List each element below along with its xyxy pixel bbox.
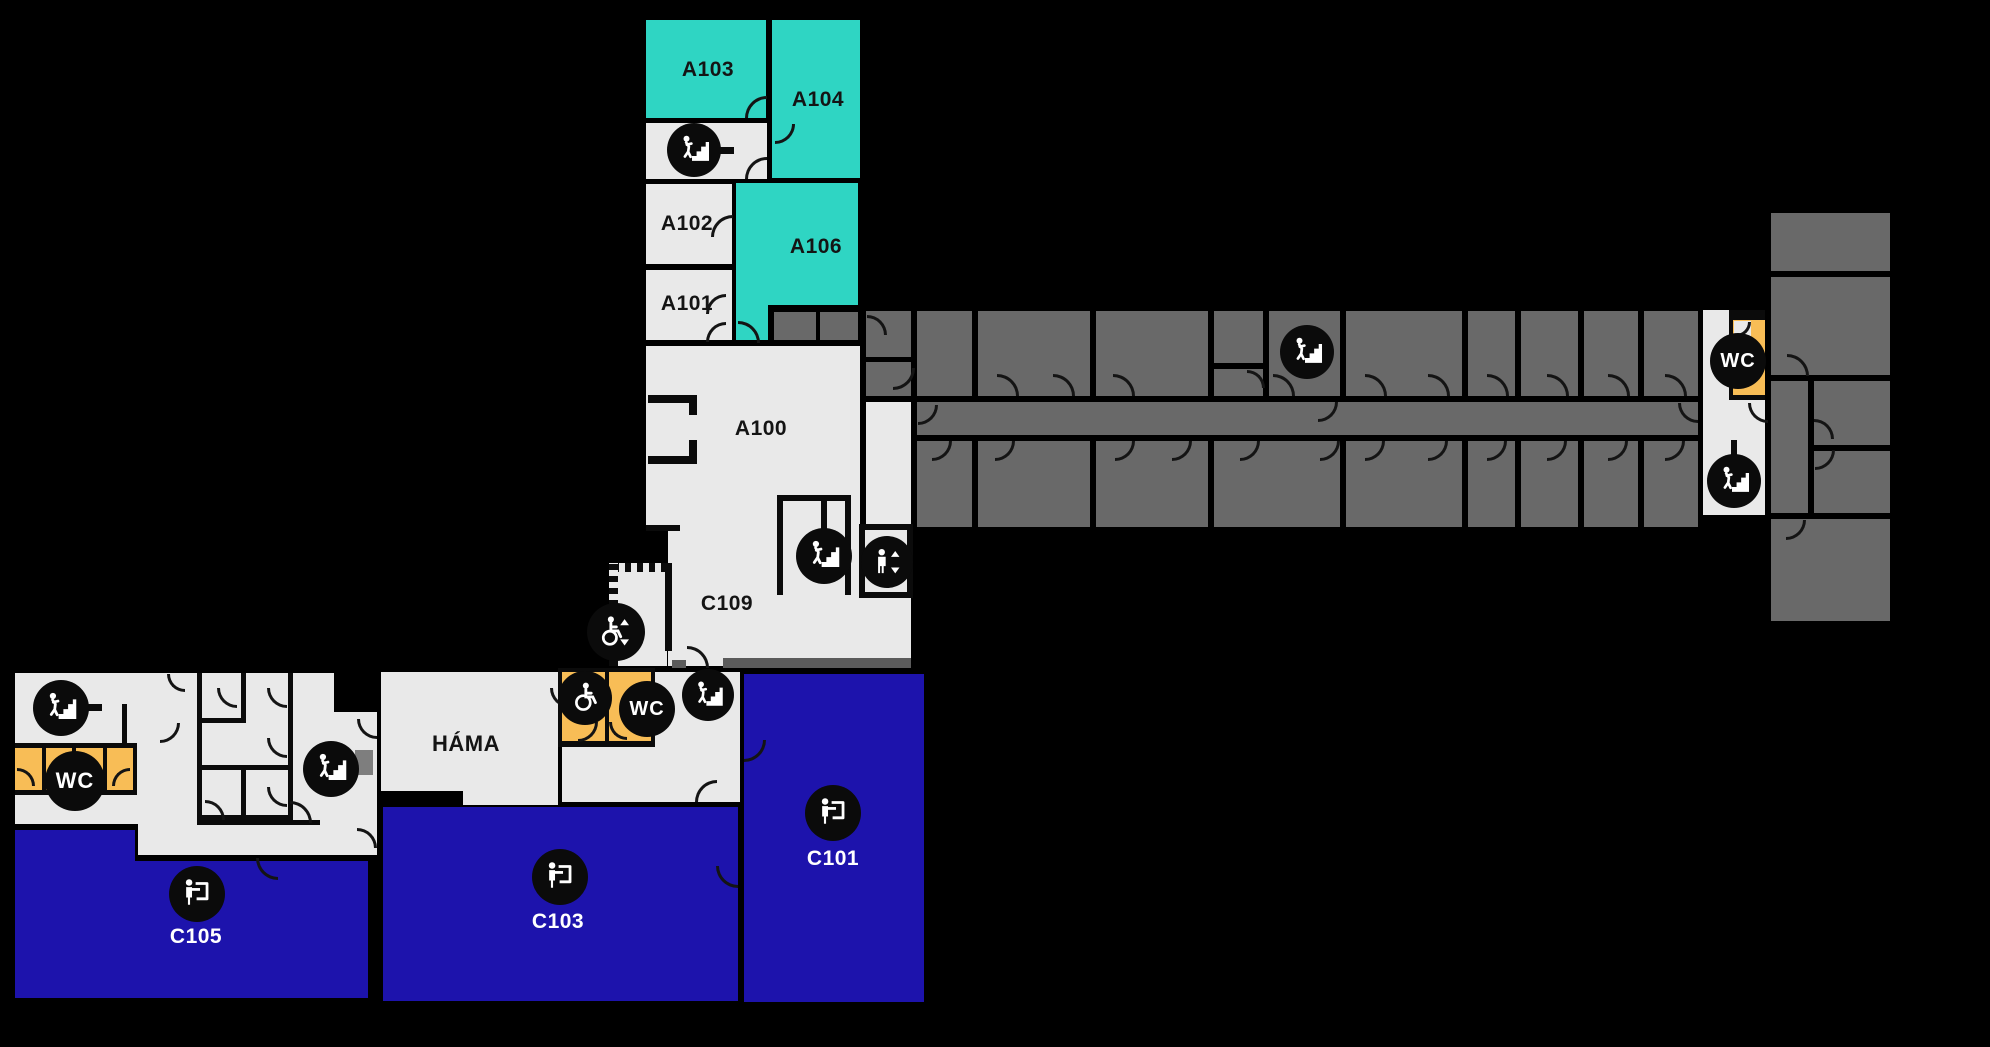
wall	[646, 525, 680, 531]
stairs-icon	[667, 123, 721, 177]
wall	[859, 592, 913, 598]
stairs-icon	[1707, 454, 1761, 508]
stairs-icon	[303, 741, 359, 797]
wall	[777, 495, 783, 595]
room-east-room-2[interactable]	[917, 311, 972, 396]
room-c105-right[interactable]	[133, 861, 368, 998]
wheelchair-lift-icon	[587, 603, 645, 661]
room-label-c105: C105	[170, 925, 222, 949]
wc-icon: WC	[45, 751, 105, 811]
room-east-room-13[interactable]	[1096, 441, 1208, 527]
wall	[197, 765, 288, 770]
room-east-room-3[interactable]	[978, 311, 1090, 396]
wall	[689, 440, 697, 464]
wall	[672, 660, 686, 668]
stairs-icon	[1280, 325, 1334, 379]
floor-plan: WCWCWCA103A104A102A106A101A100C109HÁMAC1…	[0, 0, 1990, 1047]
wall	[241, 768, 246, 818]
room-far-room-3[interactable]	[1771, 381, 1808, 513]
classroom-icon	[805, 785, 861, 841]
room-east-room-5a[interactable]	[1214, 311, 1263, 363]
room-east-room-15[interactable]	[1346, 441, 1462, 527]
classroom-icon	[532, 849, 588, 905]
room-hama-step[interactable]	[463, 789, 558, 805]
wc-icon: WC	[1710, 333, 1766, 389]
room-east-corridor[interactable]	[917, 402, 1698, 435]
classroom-icon	[169, 866, 225, 922]
wc-icon: WC	[619, 681, 675, 737]
wall	[197, 718, 246, 723]
wall	[821, 499, 827, 531]
door-arc	[893, 368, 915, 390]
stairs-icon	[33, 680, 89, 736]
room-label-c109: C109	[701, 592, 753, 616]
room-label-a106: A106	[790, 235, 842, 259]
wall	[665, 563, 672, 651]
wall	[859, 524, 913, 530]
room-label-a102: A102	[661, 212, 713, 236]
stairs-icon	[682, 669, 734, 721]
room-far-room-1[interactable]	[1771, 213, 1890, 271]
wall	[241, 673, 246, 718]
wall	[777, 495, 851, 501]
room-label-a104: A104	[792, 88, 844, 112]
room-label-a101: A101	[661, 292, 713, 316]
room-label-c103: C103	[532, 910, 584, 934]
wall	[197, 673, 202, 820]
room-label-háma: HÁMA	[432, 731, 500, 757]
room-c105-left[interactable]	[15, 830, 135, 998]
ramp-sawtooth	[613, 563, 667, 572]
room-label-c101: C101	[807, 847, 859, 871]
wall	[122, 704, 127, 744]
wheelchair-icon	[558, 671, 612, 725]
wall	[288, 673, 293, 820]
wall	[689, 395, 697, 415]
room-closet-2[interactable]	[820, 312, 858, 340]
stairs-icon	[796, 528, 852, 584]
room-east-junction[interactable]	[866, 402, 911, 530]
room-west-strip[interactable]	[138, 798, 377, 855]
wall	[723, 658, 911, 668]
elevator-icon	[861, 536, 913, 588]
room-label-a100: A100	[735, 417, 787, 441]
room-label-a103: A103	[682, 58, 734, 82]
room-closet-1[interactable]	[774, 312, 816, 340]
